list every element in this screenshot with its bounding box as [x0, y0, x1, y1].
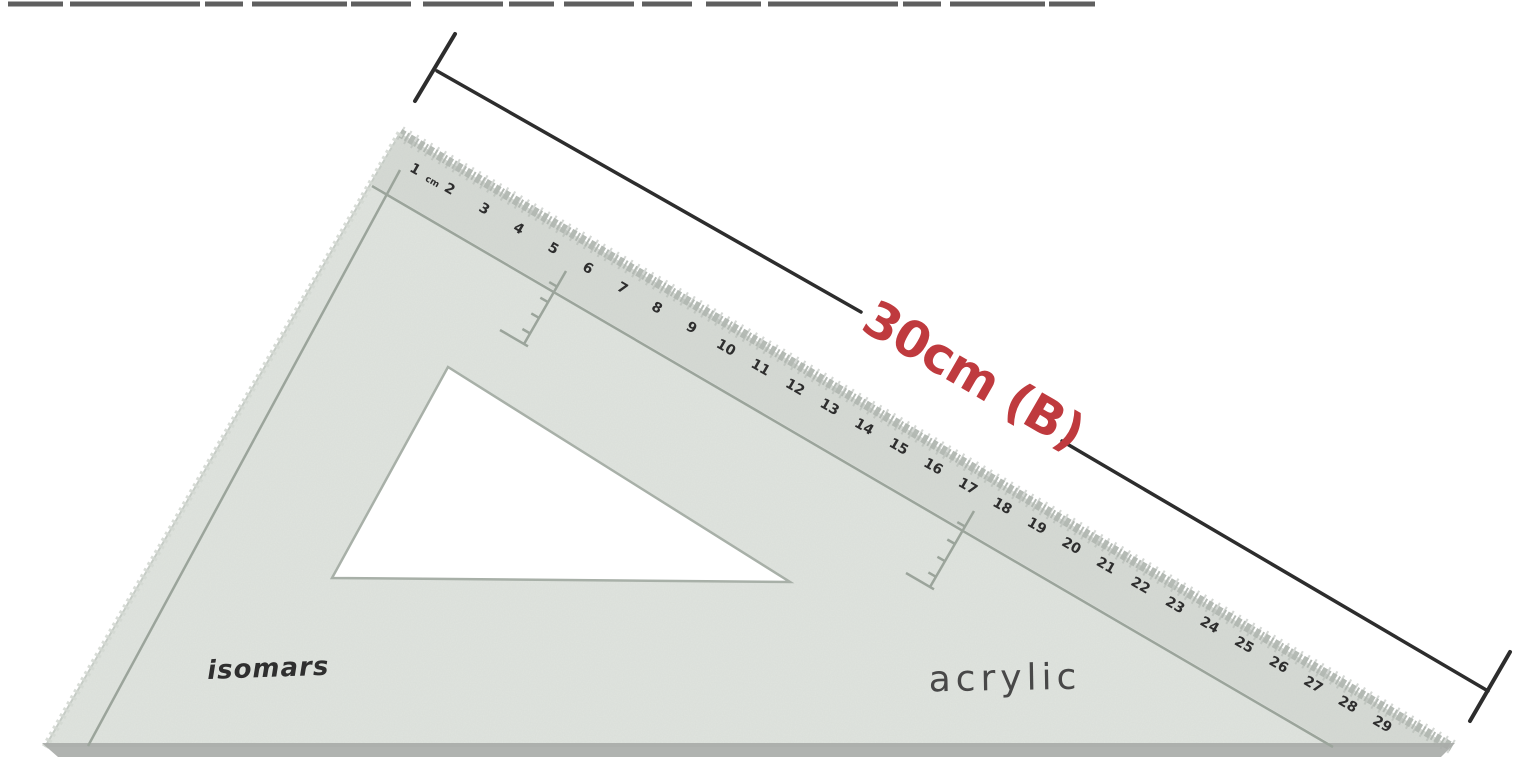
set-square-photo: 1234567891011121314151617181920212223242…	[0, 0, 1517, 784]
bottom-shadow	[42, 743, 1455, 757]
brand-text: isomars	[207, 652, 330, 686]
scanned-photo-set-square: 1234567891011121314151617181920212223242…	[0, 0, 1517, 784]
material-text: acrylic	[928, 657, 1081, 701]
